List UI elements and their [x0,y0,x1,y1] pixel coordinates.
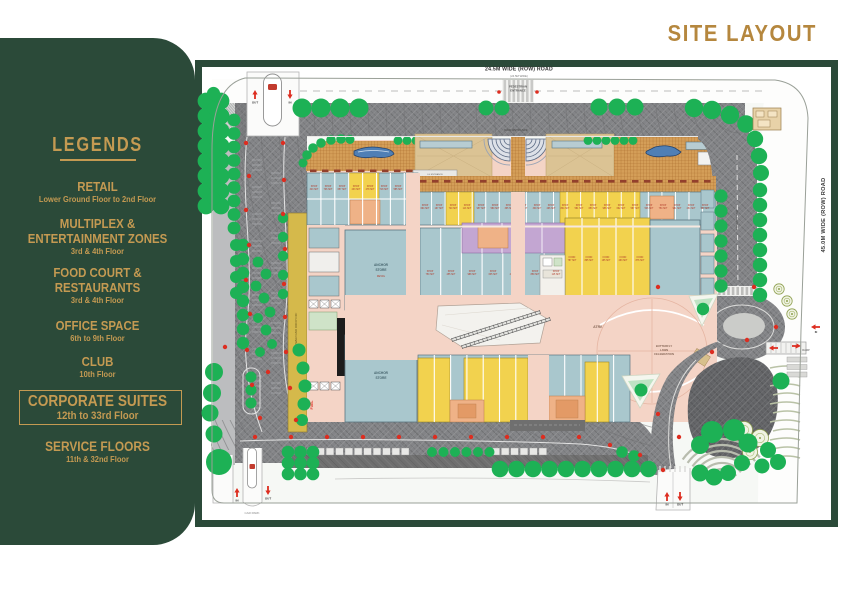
svg-text:263 SFT: 263 SFT [619,260,628,262]
svg-text:MAIN ENTRANCE: MAIN ENTRANCE [504,128,528,132]
svg-text:SHOP: SHOP [532,271,539,273]
svg-text:478 SFT: 478 SFT [366,189,375,191]
svg-text:337 SFT: 337 SFT [701,208,710,210]
svg-text:957 SFT: 957 SFT [477,208,486,210]
svg-text:718 SFT: 718 SFT [380,189,389,191]
svg-text:754 SFT: 754 SFT [659,208,668,210]
svg-text:24.5M WIDE (ROW) ROAD: 24.5M WIDE (ROW) ROAD [485,67,553,73]
svg-text:895 SFT: 895 SFT [585,260,594,262]
svg-text:STORE: STORE [376,376,387,380]
svg-text:FOOD: FOOD [569,257,576,259]
svg-text:SHOP: SHOP [562,205,569,207]
svg-text:ANCHOR: ANCHOR [374,263,389,267]
svg-text:IN: IN [289,101,292,105]
svg-text:506 SFT: 506 SFT [645,208,654,210]
svg-text:653 SFT: 653 SFT [589,208,598,210]
svg-text:CAR PARK: CAR PARK [244,511,259,515]
svg-text:SHOP: SHOP [422,205,429,207]
svg-text:IN: IN [236,499,239,503]
svg-text:657 SFT: 657 SFT [338,189,347,191]
svg-text:296 SFT: 296 SFT [547,208,556,210]
svg-text:339 SFT: 339 SFT [533,208,542,210]
svg-text:343 SFT: 343 SFT [310,189,319,191]
svg-text:CELEBRATION: CELEBRATION [654,352,674,356]
svg-text:694 SFT: 694 SFT [421,208,430,210]
svg-text:255 SFT: 255 SFT [447,274,456,276]
svg-text:ENTRANCE: ENTRANCE [510,89,526,93]
svg-text:SHOP: SHOP [395,186,402,188]
svg-text:988 SFT: 988 SFT [468,274,477,276]
svg-text:SHOP: SHOP [448,271,455,273]
svg-text:FOOD: FOOD [586,257,593,259]
svg-text:SHOP: SHOP [534,205,541,207]
svg-text:635 SFT: 635 SFT [489,274,498,276]
svg-text:SHOP: SHOP [339,186,346,188]
svg-text:SHOP: SHOP [646,205,653,207]
svg-text:SHOP: SHOP [576,205,583,207]
svg-text:FUEL: FUEL [310,401,314,410]
svg-text:SHOP: SHOP [548,205,555,207]
svg-text:SHOP: SHOP [367,186,374,188]
svg-text:SHOP: SHOP [688,205,695,207]
svg-text:956 SFT: 956 SFT [603,208,612,210]
svg-text:580 SFT: 580 SFT [491,208,500,210]
svg-text:ANCHOR: ANCHOR [374,371,389,375]
svg-text:876 SFT: 876 SFT [636,260,645,262]
svg-text:115 SFT: 115 SFT [552,274,561,276]
svg-text:FOOD: FOOD [620,257,627,259]
svg-text:233 SFT: 233 SFT [352,189,361,191]
svg-text:SHOP: SHOP [674,205,681,207]
svg-text:RAMP: RAMP [802,348,810,352]
svg-text:SHOP: SHOP [702,205,709,207]
svg-text:SHOP: SHOP [490,271,497,273]
svg-text:SHOP: SHOP [660,205,667,207]
svg-text:587 SFT: 587 SFT [631,208,640,210]
svg-text:720 SFT: 720 SFT [449,208,458,210]
svg-text:FOOD: FOOD [637,257,644,259]
svg-text:167 SFT: 167 SFT [435,208,444,210]
svg-text:RETAIL: RETAIL [377,275,386,278]
svg-text:787 SFT: 787 SFT [568,260,577,262]
svg-text:SHOP: SHOP [553,271,560,273]
svg-text:FOOD: FOOD [603,257,610,259]
svg-text:SHOP: SHOP [311,186,318,188]
svg-text:SHOP: SHOP [353,186,360,188]
svg-text:581 SFT: 581 SFT [575,208,584,210]
svg-text:STORE: STORE [376,268,387,272]
svg-text:834 SFT: 834 SFT [561,208,570,210]
svg-text:113 SFT: 113 SFT [463,208,472,210]
svg-text:585 SFT: 585 SFT [394,189,403,191]
svg-text:981 SFT: 981 SFT [673,208,682,210]
svg-text:IN: IN [815,330,818,334]
svg-text:750 SFT: 750 SFT [426,274,435,276]
svg-text:SHOP: SHOP [450,205,457,207]
svg-text:SHOP: SHOP [492,205,499,207]
svg-text:662 SFT: 662 SFT [617,208,626,210]
svg-text:859 SFT: 859 SFT [531,274,540,276]
svg-text:165 SFT: 165 SFT [602,260,611,262]
svg-text:OUT: OUT [252,101,259,105]
svg-text:SHOP: SHOP [436,205,443,207]
svg-text:SHOP: SHOP [381,186,388,188]
svg-text:SHOP: SHOP [604,205,611,207]
svg-text:45.0M WIDE (ROW) ROAD: 45.0M WIDE (ROW) ROAD [821,178,827,253]
svg-text:LOWER GND DROP OFF: LOWER GND DROP OFF [294,312,298,347]
svg-text:SHOP: SHOP [427,271,434,273]
svg-text:SHOP: SHOP [618,205,625,207]
svg-text:SHOP: SHOP [478,205,485,207]
svg-text:OUT: OUT [265,497,272,501]
svg-text:(24.5M WIDE): (24.5M WIDE) [510,74,528,78]
svg-text:SHOP: SHOP [590,205,597,207]
svg-text:706 SFT: 706 SFT [324,189,333,191]
svg-text:254 SFT: 254 SFT [687,208,696,210]
svg-text:SHOP: SHOP [632,205,639,207]
svg-text:SHOP: SHOP [325,186,332,188]
svg-text:LG ENTRANCE: LG ENTRANCE [427,173,443,176]
svg-text:MALL DROP OFF: MALL DROP OFF [735,210,739,231]
svg-text:SHOP: SHOP [464,205,471,207]
svg-text:SHOP: SHOP [469,271,476,273]
